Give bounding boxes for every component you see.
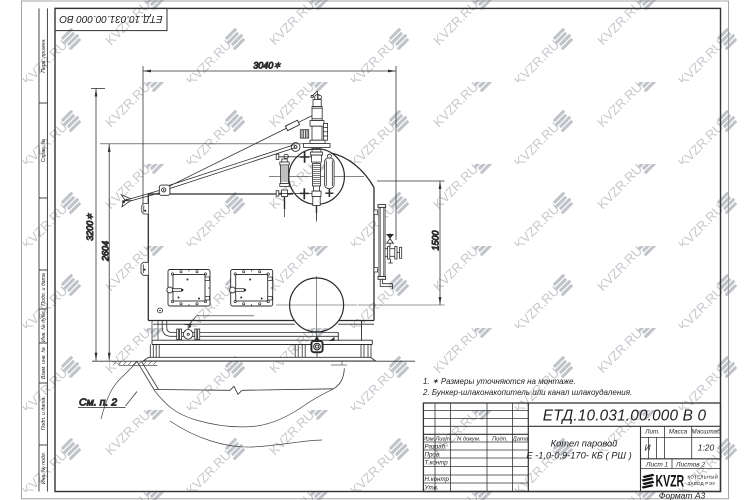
svg-text:И: И (645, 443, 652, 453)
svg-text:Подп. и дата: Подп. и дата (41, 273, 47, 306)
svg-text:KVZR: KVZR (656, 471, 685, 490)
svg-text:Взам. инв. №: Взам. инв. № (41, 347, 47, 379)
svg-text:ЕТД.10.031.00.000 ВО: ЕТД.10.031.00.000 ВО (59, 13, 163, 24)
svg-text:Котел паровой: Котел паровой (551, 439, 618, 449)
svg-text:1. ✶ Размеры уточняются на м: 1. ✶ Размеры уточняются на монтаже. (423, 377, 576, 386)
svg-text:N докум.: N докум. (457, 437, 480, 443)
svg-text:Масштаб: Масштаб (692, 429, 721, 436)
svg-text:1:20: 1:20 (698, 443, 715, 453)
svg-text:Лист: Лист (434, 437, 450, 443)
svg-text:Е -1,0-0,9-170- КБ ( РШ ): Е -1,0-0,9-170- КБ ( РШ ) (526, 451, 631, 461)
svg-text:3200✶: 3200✶ (85, 213, 95, 241)
svg-text:2604: 2604 (100, 241, 110, 262)
svg-text:1500: 1500 (430, 230, 440, 250)
svg-text:Разраб.: Разраб. (425, 444, 447, 451)
svg-text:Справ. №: Справ. № (41, 138, 47, 162)
svg-text:ЗАВОД РЭУ: ЗАВОД РЭУ (688, 481, 716, 486)
svg-text:Изм.: Изм. (423, 437, 435, 443)
svg-text:Пров.: Пров. (425, 451, 441, 458)
svg-text:Формат А3: Формат А3 (659, 491, 706, 500)
svg-text:Т.контр: Т.контр (425, 459, 449, 466)
svg-text:Н.контр: Н.контр (425, 476, 450, 483)
svg-text:Листов 2: Листов 2 (675, 462, 705, 469)
svg-text:Подп. и дата: Подп. и дата (41, 398, 47, 431)
svg-text:Дата: Дата (512, 437, 529, 443)
svg-text:Подп.: Подп. (492, 437, 507, 443)
svg-text:2. Бункер-шлаконакопитель или: 2. Бункер-шлаконакопитель или канал шлак… (422, 388, 632, 397)
svg-text:3040✶: 3040✶ (253, 61, 281, 71)
svg-text:Лит.: Лит. (644, 429, 660, 436)
svg-text:КОТЕЛЬНЫЙ: КОТЕЛЬНЫЙ (688, 473, 719, 480)
svg-text:Перв. примен.: Перв. примен. (41, 38, 47, 72)
svg-text:Масса: Масса (669, 429, 688, 436)
svg-text:Утв.: Утв. (424, 485, 439, 492)
svg-text:См. п. 2: См. п. 2 (79, 397, 117, 409)
svg-text:Лист 1: Лист 1 (645, 462, 669, 469)
svg-text:Инв. № дубл.: Инв. № дубл. (41, 310, 47, 342)
svg-text:Инв. № подл.: Инв. № подл. (41, 452, 47, 484)
svg-text:ЕТД.10.031.00.000 В 0: ЕТД.10.031.00.000 В 0 (543, 408, 707, 425)
